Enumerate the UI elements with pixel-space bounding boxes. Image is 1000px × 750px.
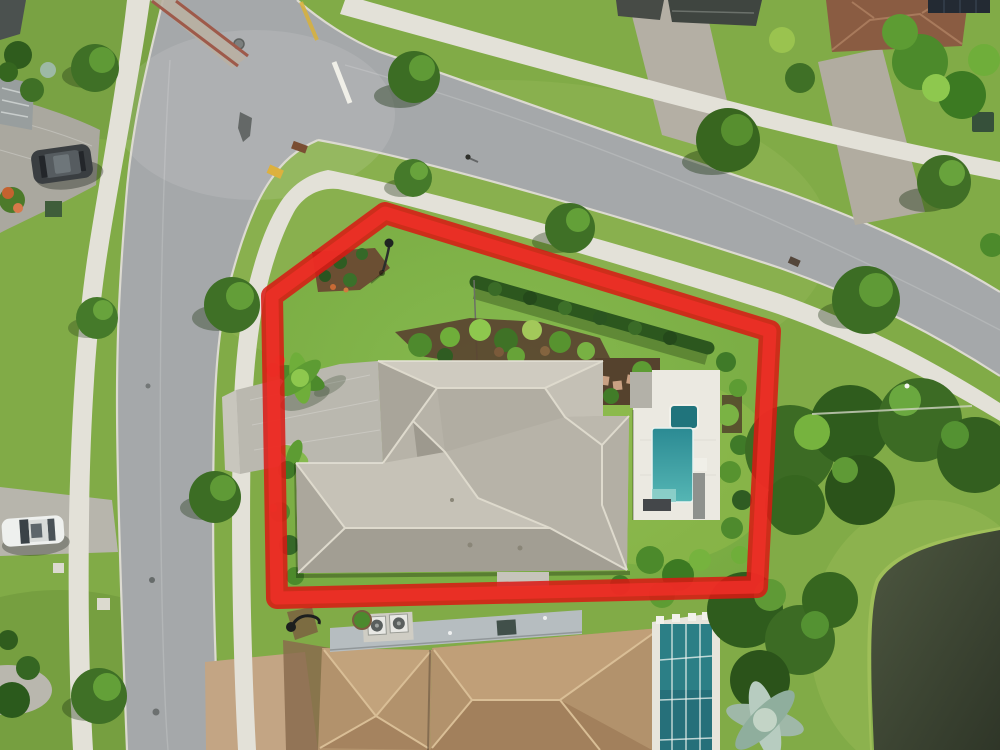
water-feature (694, 458, 707, 471)
aerial-photo (0, 0, 1000, 750)
spa (670, 405, 698, 429)
flower-bush (0, 187, 25, 213)
pool-area (630, 370, 720, 520)
small-shrub (353, 611, 371, 629)
utility-box-green (972, 112, 994, 132)
paver-pad (630, 372, 652, 408)
deck-strip (693, 473, 705, 519)
utility-pad (45, 201, 62, 217)
bottom-neighbor-house (283, 607, 720, 750)
utility-marker-b (53, 563, 64, 573)
screened-pool-enclosure (652, 612, 720, 750)
solar-panels (928, 0, 990, 13)
utility-marker-a (97, 598, 110, 610)
skylight (497, 619, 517, 635)
grill (643, 499, 671, 511)
